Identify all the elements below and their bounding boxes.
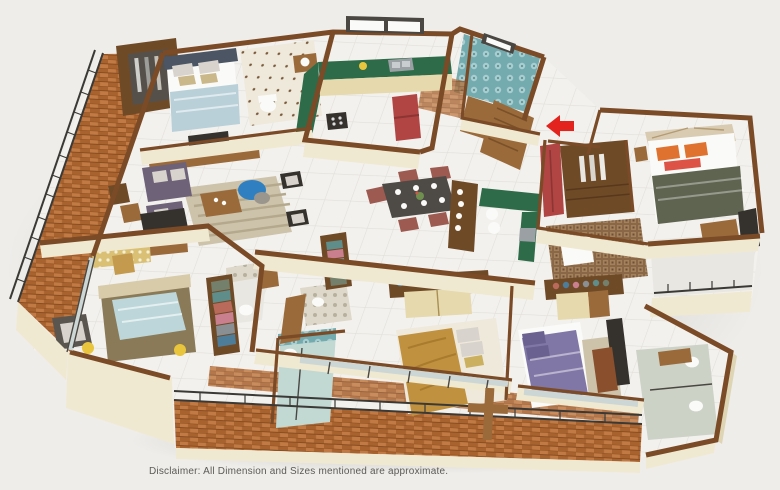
- bedroom-3-bath-floor: [276, 334, 336, 428]
- floorplan-image: Disclaimer: All Dimension and Sizes ment…: [0, 0, 780, 490]
- desk-chair: [112, 253, 135, 275]
- bed: [163, 48, 240, 132]
- sofa-3seat: [142, 162, 192, 202]
- cabinet: [556, 292, 590, 320]
- kitchen-window: [346, 16, 424, 34]
- balcony-chair: [120, 203, 142, 223]
- basin: [301, 58, 310, 67]
- side-table: [634, 146, 648, 162]
- walkin-wardrobe: [560, 140, 633, 218]
- hob: [326, 112, 348, 130]
- appliance: [486, 208, 498, 220]
- flower-pot: [359, 62, 367, 70]
- utility-sink: [519, 228, 536, 242]
- crockery-unit: [448, 180, 478, 252]
- coffee-table: [200, 189, 242, 217]
- pouf: [82, 342, 94, 354]
- toilet: [689, 401, 703, 412]
- sink: [388, 58, 414, 72]
- disclaimer-text: Disclaimer: All Dimension and Sizes ment…: [149, 466, 448, 477]
- toilet: [239, 305, 253, 316]
- appliance: [488, 222, 500, 234]
- floorplan-render: [0, 0, 780, 490]
- bed: [645, 124, 744, 224]
- toilet: [312, 297, 324, 306]
- pouf: [174, 344, 186, 356]
- cabinet: [588, 290, 610, 318]
